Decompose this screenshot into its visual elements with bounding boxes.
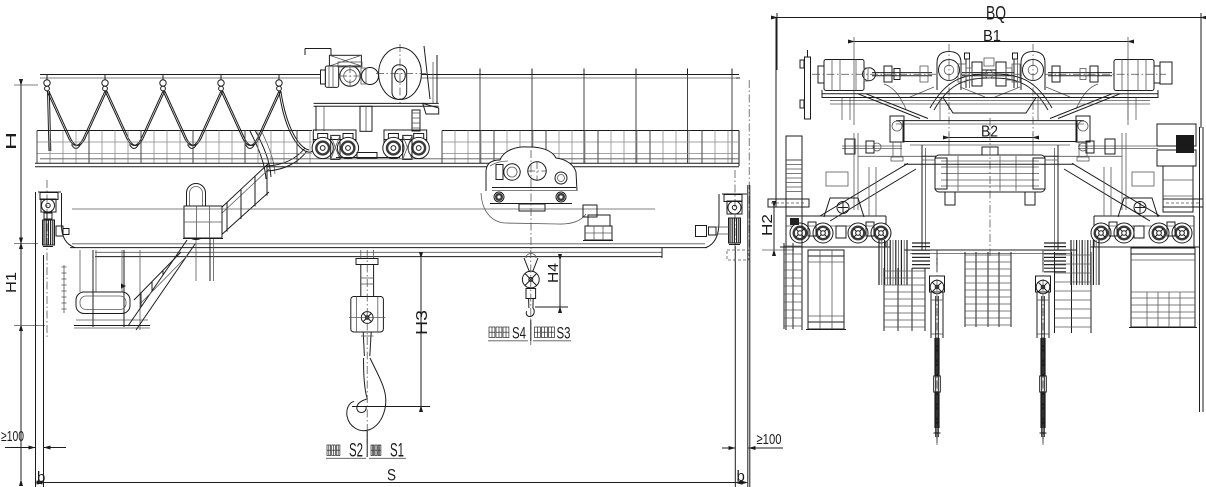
svg-text:S3: S3 (557, 324, 571, 343)
svg-text:H1: H1 (4, 272, 20, 293)
svg-text:≥100: ≥100 (757, 431, 782, 448)
svg-text:S: S (387, 466, 396, 485)
svg-text:H3: H3 (414, 310, 431, 335)
svg-text:≥100: ≥100 (1, 428, 24, 445)
svg-text:B1: B1 (983, 28, 1001, 45)
svg-text:H2: H2 (759, 214, 776, 236)
svg-text:S4: S4 (512, 324, 526, 343)
svg-text:BQ: BQ (986, 4, 1006, 25)
svg-text:H4: H4 (545, 263, 562, 283)
svg-text:H: H (3, 132, 20, 150)
